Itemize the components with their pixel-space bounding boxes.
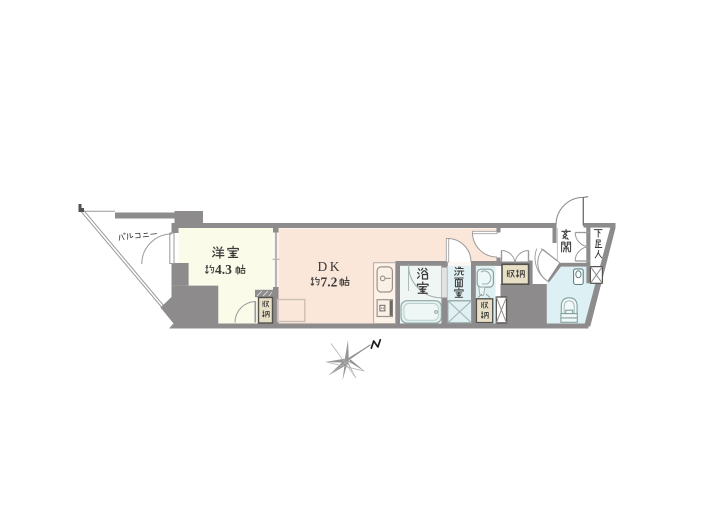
- svg-text:4.3: 4.3: [215, 262, 232, 277]
- svg-text:7.2: 7.2: [321, 275, 338, 290]
- svg-text:DK: DK: [318, 259, 343, 274]
